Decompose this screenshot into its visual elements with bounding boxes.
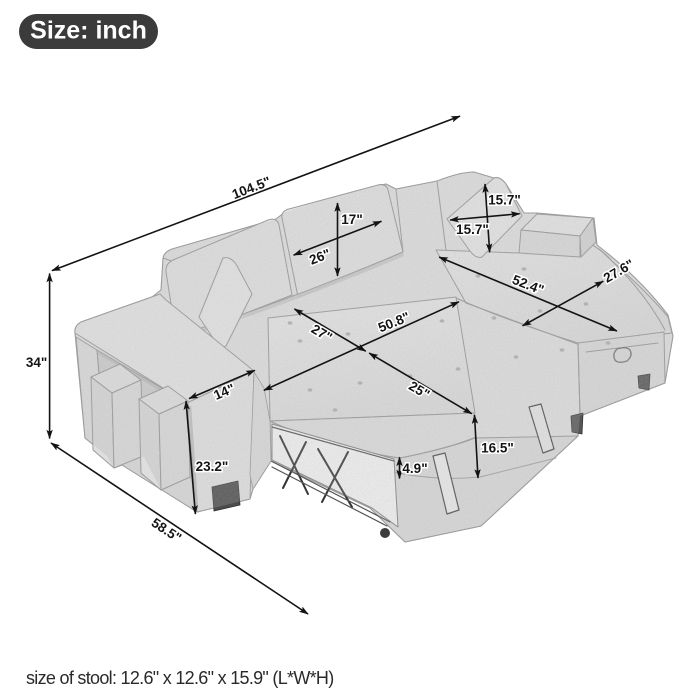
svg-text:23.2": 23.2": [196, 459, 229, 474]
svg-text:16.5": 16.5": [481, 441, 514, 456]
svg-text:4.9": 4.9": [402, 461, 427, 476]
svg-text:size of stool: 12.6" x 12.6" x: size of stool: 12.6" x 12.6" x 15.9" (L*…: [26, 668, 334, 688]
svg-text:34": 34": [26, 355, 47, 370]
svg-text:15.7": 15.7": [456, 222, 489, 237]
svg-text:Size: inch: Size: inch: [30, 17, 147, 45]
svg-text:15.7": 15.7": [488, 192, 521, 207]
svg-text:17": 17": [341, 212, 362, 227]
